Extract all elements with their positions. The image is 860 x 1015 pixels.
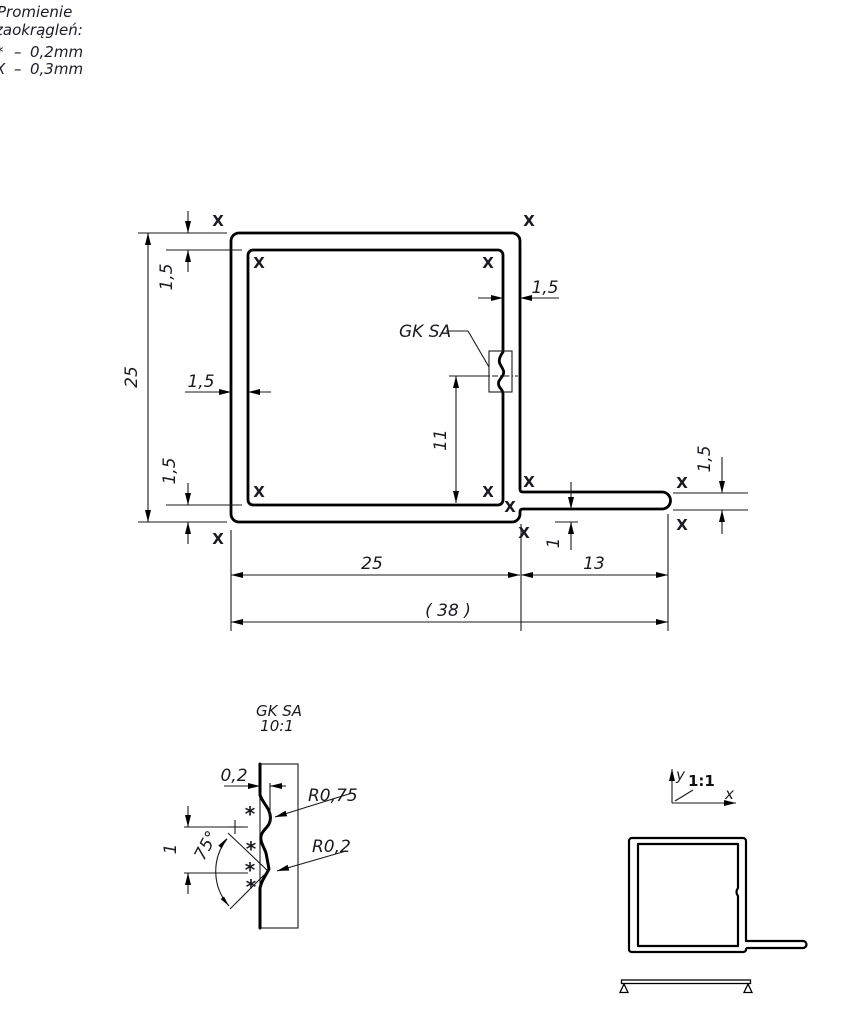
detail-view: GK SA 10:1 0,2 R0,75 R0,2 (161, 702, 358, 928)
legend-item-03: X–0,3mm (0, 60, 83, 78)
x-mark: X (482, 254, 494, 272)
svg-text:0,2: 0,2 (220, 766, 247, 786)
detail-groove-profile (260, 764, 271, 928)
svg-text:R0,2: R0,2 (312, 837, 351, 857)
detail-reference-leader: GK SA (399, 322, 489, 367)
svg-text:1,5: 1,5 (695, 445, 715, 472)
legend-item-02: *–0,2mm (0, 43, 83, 61)
profile-outer-contour (231, 233, 671, 522)
fillet-legend: Promienie zaokrągleń: *–0,2mm X–0,3mm (0, 3, 83, 78)
legend-title-line2: zaokrągleń: (0, 21, 83, 39)
support-triangle-right (744, 984, 752, 993)
svg-text:11: 11 (431, 429, 451, 451)
svg-text:1,5: 1,5 (531, 278, 558, 298)
x-mark: X (482, 483, 494, 501)
x-mark: X (504, 498, 516, 516)
x-axis-label: x (724, 785, 734, 803)
asterisk-symbol: * (0, 43, 4, 61)
svg-text:1,5: 1,5 (157, 263, 177, 290)
svg-text:25: 25 (122, 366, 142, 388)
x-mark: X (676, 474, 688, 492)
x-mark: X (676, 516, 688, 534)
profile-1to1-outer (629, 838, 807, 952)
detail-reference-label: GK SA (399, 322, 451, 342)
x-mark: X (212, 212, 224, 230)
svg-text:1,5: 1,5 (160, 457, 180, 484)
scale-1-1-view: y 1:1 x (620, 766, 807, 993)
dim-wall-right: 1,5 (478, 278, 559, 298)
dim-radius-inner: R0,2 (277, 837, 351, 871)
dim-groove-angle: 75° (191, 828, 268, 909)
star-mark: * (245, 802, 256, 826)
support-bar (620, 980, 752, 993)
y-axis-label: y (675, 766, 686, 784)
legend-title-line1: Promienie (0, 3, 72, 21)
engineering-drawing: Promienie zaokrągleń: *–0,2mm X–0,3mm 25… (0, 0, 860, 1015)
angle-arrow-bottom (221, 897, 229, 907)
dim-bottom-widths: 25 13 ( 38 ) (231, 514, 668, 631)
coordinate-axes: y 1:1 x (672, 766, 736, 803)
svg-text:1: 1 (544, 538, 564, 549)
dim-radius-outer: R0,75 (275, 786, 358, 817)
dim-overall-label: ( 38 ) (425, 601, 471, 621)
x-mark: X (253, 254, 265, 272)
svg-text:1,5: 1,5 (187, 372, 214, 392)
dim-width-label: 25 (361, 554, 383, 574)
detail-scale: 10:1 (260, 717, 294, 735)
dim-flange-length-label: 13 (583, 554, 605, 574)
support-triangle-left (620, 984, 628, 993)
x-symbol: X (0, 60, 6, 78)
x-mark: X (253, 483, 265, 501)
main-section-view: 25 1,5 1,5 1,5 1,5 (122, 211, 748, 631)
fillet-x-marks: X X X X X X X X X X X X (212, 212, 688, 548)
profile-inner-contour (248, 250, 504, 505)
svg-text:1: 1 (161, 844, 181, 855)
dim-wall-left: 1,5 (185, 372, 271, 392)
dim-groove-depth: 0,2 (220, 766, 286, 786)
x-mark: X (212, 530, 224, 548)
x-mark: X (523, 212, 535, 230)
dim-wall-top: 1,5 (157, 211, 242, 291)
scale-label: 1:1 (688, 772, 715, 790)
x-mark: X (523, 473, 535, 491)
z-axis-line (675, 790, 693, 801)
detail-wall-strip (260, 764, 298, 928)
profile-1to1-inner (638, 844, 738, 946)
dim-groove-height: 11 (431, 376, 490, 503)
fillet-star-marks: * * * * (245, 802, 257, 899)
star-mark: * (246, 875, 257, 899)
svg-text:R0,75: R0,75 (308, 786, 358, 806)
x-mark: X (518, 524, 530, 542)
